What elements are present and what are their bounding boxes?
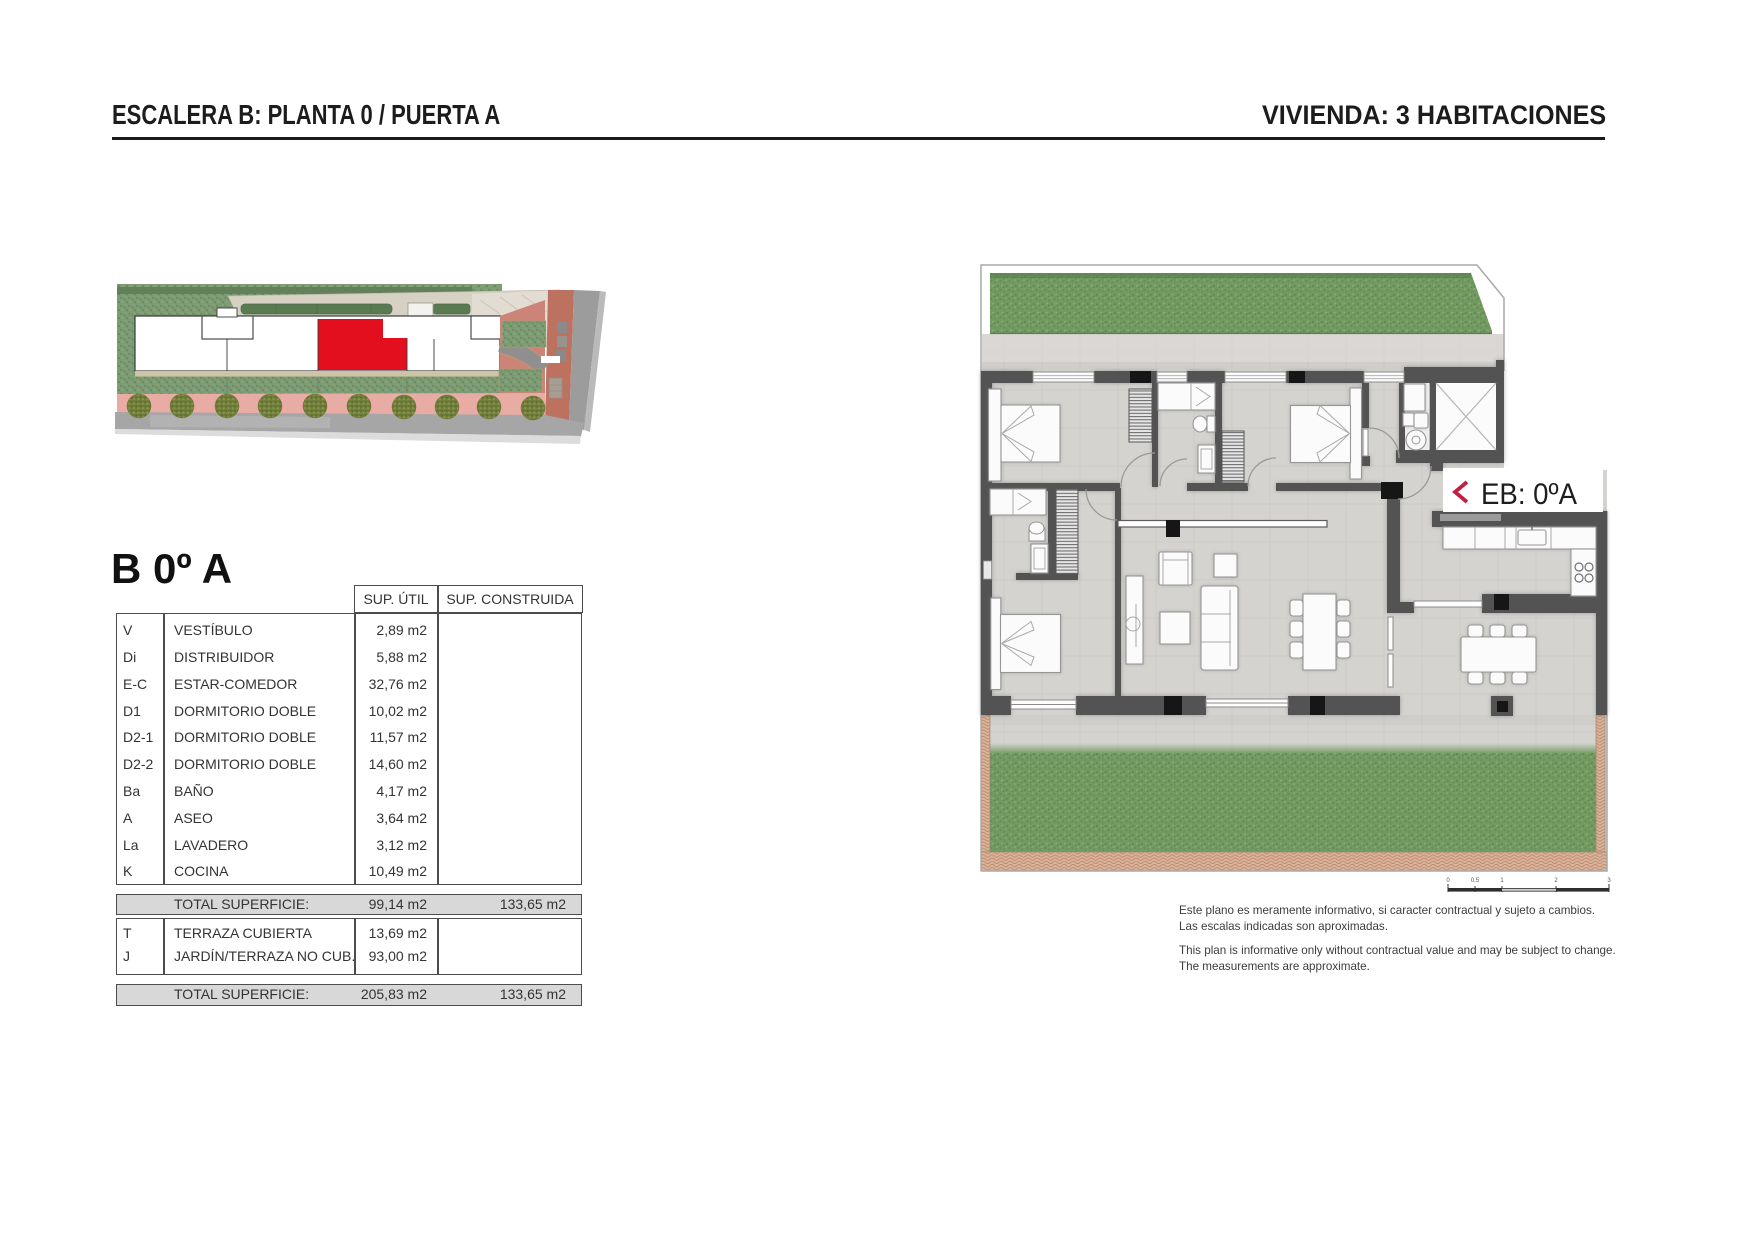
svg-text:1: 1 xyxy=(1500,878,1504,884)
svg-text:2: 2 xyxy=(1554,878,1558,884)
svg-text:0: 0 xyxy=(1446,878,1450,884)
svg-text:EB: 0ºA: EB: 0ºA xyxy=(1481,478,1577,511)
svg-text:3: 3 xyxy=(1607,878,1611,884)
svg-text:0.5: 0.5 xyxy=(1471,878,1480,884)
